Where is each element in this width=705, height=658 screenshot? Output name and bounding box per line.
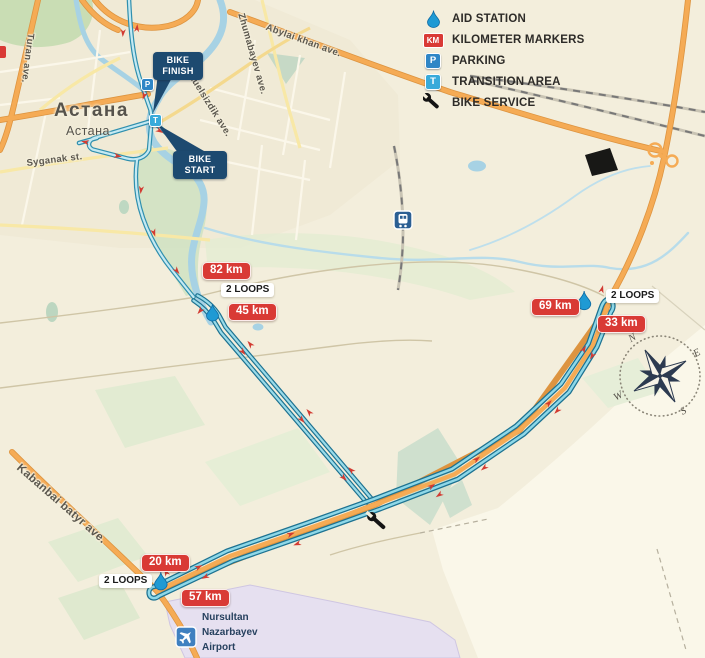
bike-service-legend-icon <box>423 93 443 113</box>
legend-km-markers-label: KILOMETER MARKERS <box>452 34 584 46</box>
km-marker-icon: KM <box>423 33 444 48</box>
train-station-icon <box>394 211 412 229</box>
parking-icon: P <box>425 53 441 69</box>
bike-finish-callout: BIKE FINISH <box>153 52 203 80</box>
transition-icon: T <box>425 74 441 90</box>
legend-parking-label: PARKING <box>452 55 584 67</box>
legend: AID STATION KM KILOMETER MARKERS P PARKI… <box>420 9 584 113</box>
bike-course-map: AID STATION KM KILOMETER MARKERS P PARKI… <box>0 0 705 658</box>
loops-label-city: 2 LOOPS <box>221 283 274 297</box>
loops-label-ne: 2 LOOPS <box>606 289 659 303</box>
loops-label-sw: 2 LOOPS <box>99 574 152 588</box>
course-parking-badge: P <box>141 78 154 91</box>
aid-station-icon <box>427 10 440 28</box>
km-marker-45: 45 km <box>228 303 277 321</box>
legend-transition-label: TRANSITION AREA <box>452 76 584 88</box>
legend-aid-station-label: AID STATION <box>452 13 584 25</box>
city-name-primary: Астана <box>54 100 129 122</box>
km-marker-57: 57 km <box>181 589 230 607</box>
km-marker-82: 82 km <box>202 262 251 280</box>
km-marker-33: 33 km <box>597 315 646 333</box>
course-transition-badge: T <box>149 114 162 127</box>
km-marker-69: 69 km <box>531 298 580 316</box>
km-marker-20: 20 km <box>141 554 190 572</box>
bike-start-callout: BIKE START <box>173 151 227 179</box>
legend-bike-service-label: BIKE SERVICE <box>452 97 584 109</box>
airport-name: Nursultan Nazarbayev Airport <box>202 610 258 655</box>
city-name-secondary: Астана <box>66 124 110 138</box>
edge-label-fragment <box>0 46 6 58</box>
airport-icon <box>176 627 196 647</box>
